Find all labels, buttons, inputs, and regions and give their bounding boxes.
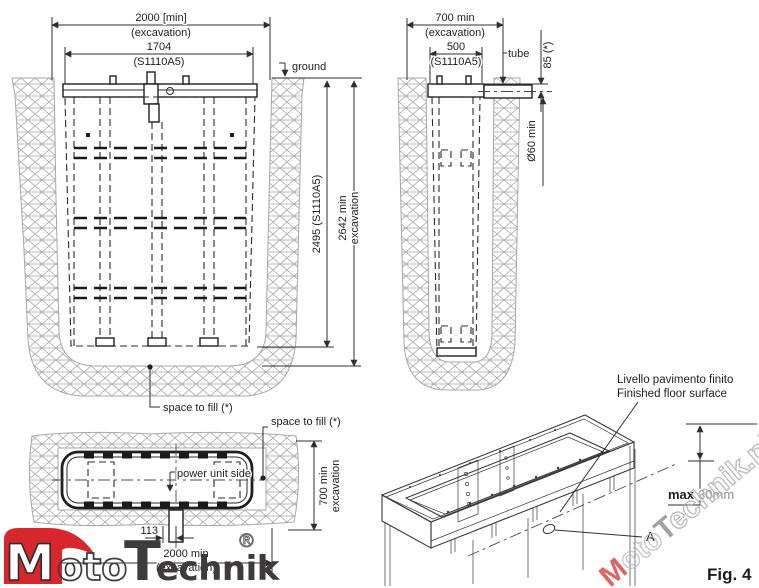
floor-label-italian: Livello pavimento finito: [617, 374, 733, 386]
power-unit-side-label: power unit side: [177, 468, 251, 480]
rim-bolts: [409, 429, 603, 513]
top-dim-excavation-depth-sub: excavation: [330, 460, 342, 513]
front-dim-excavation-width-sub: (excavation): [131, 27, 191, 39]
side-dim-unit-width-sub: (S1110A5): [431, 56, 482, 68]
front-space-to-fill-label: space to fill (*): [163, 402, 233, 414]
side-dim-excavation-width: 700 min: [435, 12, 474, 24]
logo-registered-mark: ®: [237, 530, 256, 552]
tube-label: tube: [508, 48, 529, 60]
front-dim-unit-width: 1704: [147, 41, 171, 53]
floor-leader-line: [560, 402, 638, 512]
excavation-drawing: 2000 [min] (excavation) 1704 (S1110A5) g…: [0, 0, 759, 588]
logo-echnik: echnik: [156, 549, 281, 588]
iso-detail-a: [542, 523, 642, 537]
front-view: 2000 [min] (excavation) 1704 (S1110A5) g…: [12, 12, 362, 414]
side-unit: [428, 76, 484, 356]
watermark-rest: echnik.pl: [661, 428, 759, 537]
front-excavation-soil: [12, 78, 304, 396]
front-unit: [63, 72, 257, 346]
watermark-text: MotoTechnik.pl: [593, 428, 759, 588]
side-dim-excavation-width-sub: (excavation): [425, 27, 485, 39]
side-dim-unit-width: 500: [447, 41, 465, 53]
ground-label: ground: [292, 61, 326, 73]
front-dim-excavation-width: 2000 [min]: [135, 12, 186, 24]
top-space-to-fill-label: space to fill (*): [271, 416, 341, 428]
moto-technik-logo: M oto T echnik ®: [4, 528, 281, 588]
logo-oto: oto: [57, 545, 127, 588]
front-dim-excavation-depth-sub: excavation: [349, 192, 361, 245]
side-view: 700 min (excavation) 500 (S1110A5) tube …: [398, 12, 554, 390]
technical-drawing-page: 2000 [min] (excavation) 1704 (S1110A5) g…: [0, 0, 759, 588]
front-dim-unit-width-sub: (S1110A5): [134, 56, 185, 68]
side-dim-tube-depth: 85 (*): [542, 42, 554, 69]
floor-label-english: Finished floor surface: [617, 388, 727, 400]
side-excavation-soil: [398, 78, 520, 390]
front-dim-excavation-depth: 2642 min: [337, 195, 349, 240]
watermark: MotoTechnik.pl: [593, 428, 759, 588]
logo-letter-m: M: [5, 534, 55, 588]
top-dim-excavation-depth: 700 min: [318, 466, 330, 505]
front-dim-unit-height: 2495 (S1110A5): [311, 175, 323, 253]
iso-frame: [382, 415, 635, 586]
figure-label: Fig. 4: [707, 565, 752, 584]
side-dim-tube-diameter: Ø60 min: [526, 120, 538, 162]
